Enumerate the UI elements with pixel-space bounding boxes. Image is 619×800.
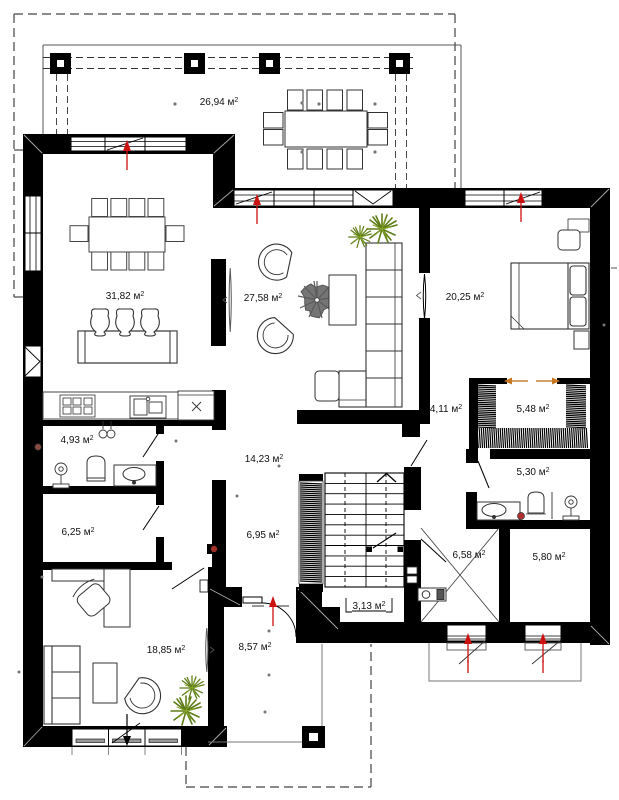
svg-text:31,82 м2: 31,82 м2 [106,291,145,302]
svg-text:18,85 м2: 18,85 м2 [147,645,186,656]
svg-text:4,93 м2: 4,93 м2 [60,435,93,446]
svg-text:8,57 м2: 8,57 м2 [238,642,271,653]
svg-text:26,94 м2: 26,94 м2 [200,97,239,108]
svg-text:20,25 м2: 20,25 м2 [446,292,485,303]
svg-text:6,25 м2: 6,25 м2 [61,527,94,538]
svg-text:6,95 м2: 6,95 м2 [246,530,279,541]
svg-text:6,58 м2: 6,58 м2 [452,550,485,561]
svg-text:14,23 м2: 14,23 м2 [245,454,284,465]
svg-text:4,11 м2: 4,11 м2 [430,404,462,415]
svg-text:27,58 м2: 27,58 м2 [244,293,283,304]
svg-text:5,48 м2: 5,48 м2 [516,404,549,415]
svg-text:5,30 м2: 5,30 м2 [516,467,549,478]
svg-text:3,13 м2: 3,13 м2 [352,601,385,612]
svg-text:5,80 м2: 5,80 м2 [532,552,565,563]
